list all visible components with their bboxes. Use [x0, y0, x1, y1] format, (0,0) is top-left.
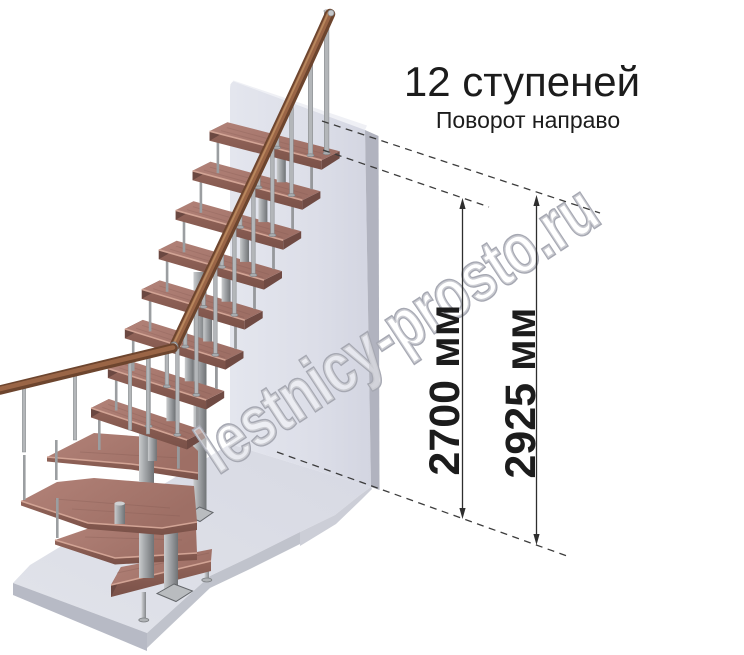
svg-text:2700 мм: 2700 мм [421, 304, 469, 475]
svg-text:2925 мм: 2925 мм [497, 307, 545, 478]
svg-text:12 ступеней: 12 ступеней [404, 58, 640, 105]
svg-text:Поворот направо: Поворот направо [436, 107, 620, 133]
